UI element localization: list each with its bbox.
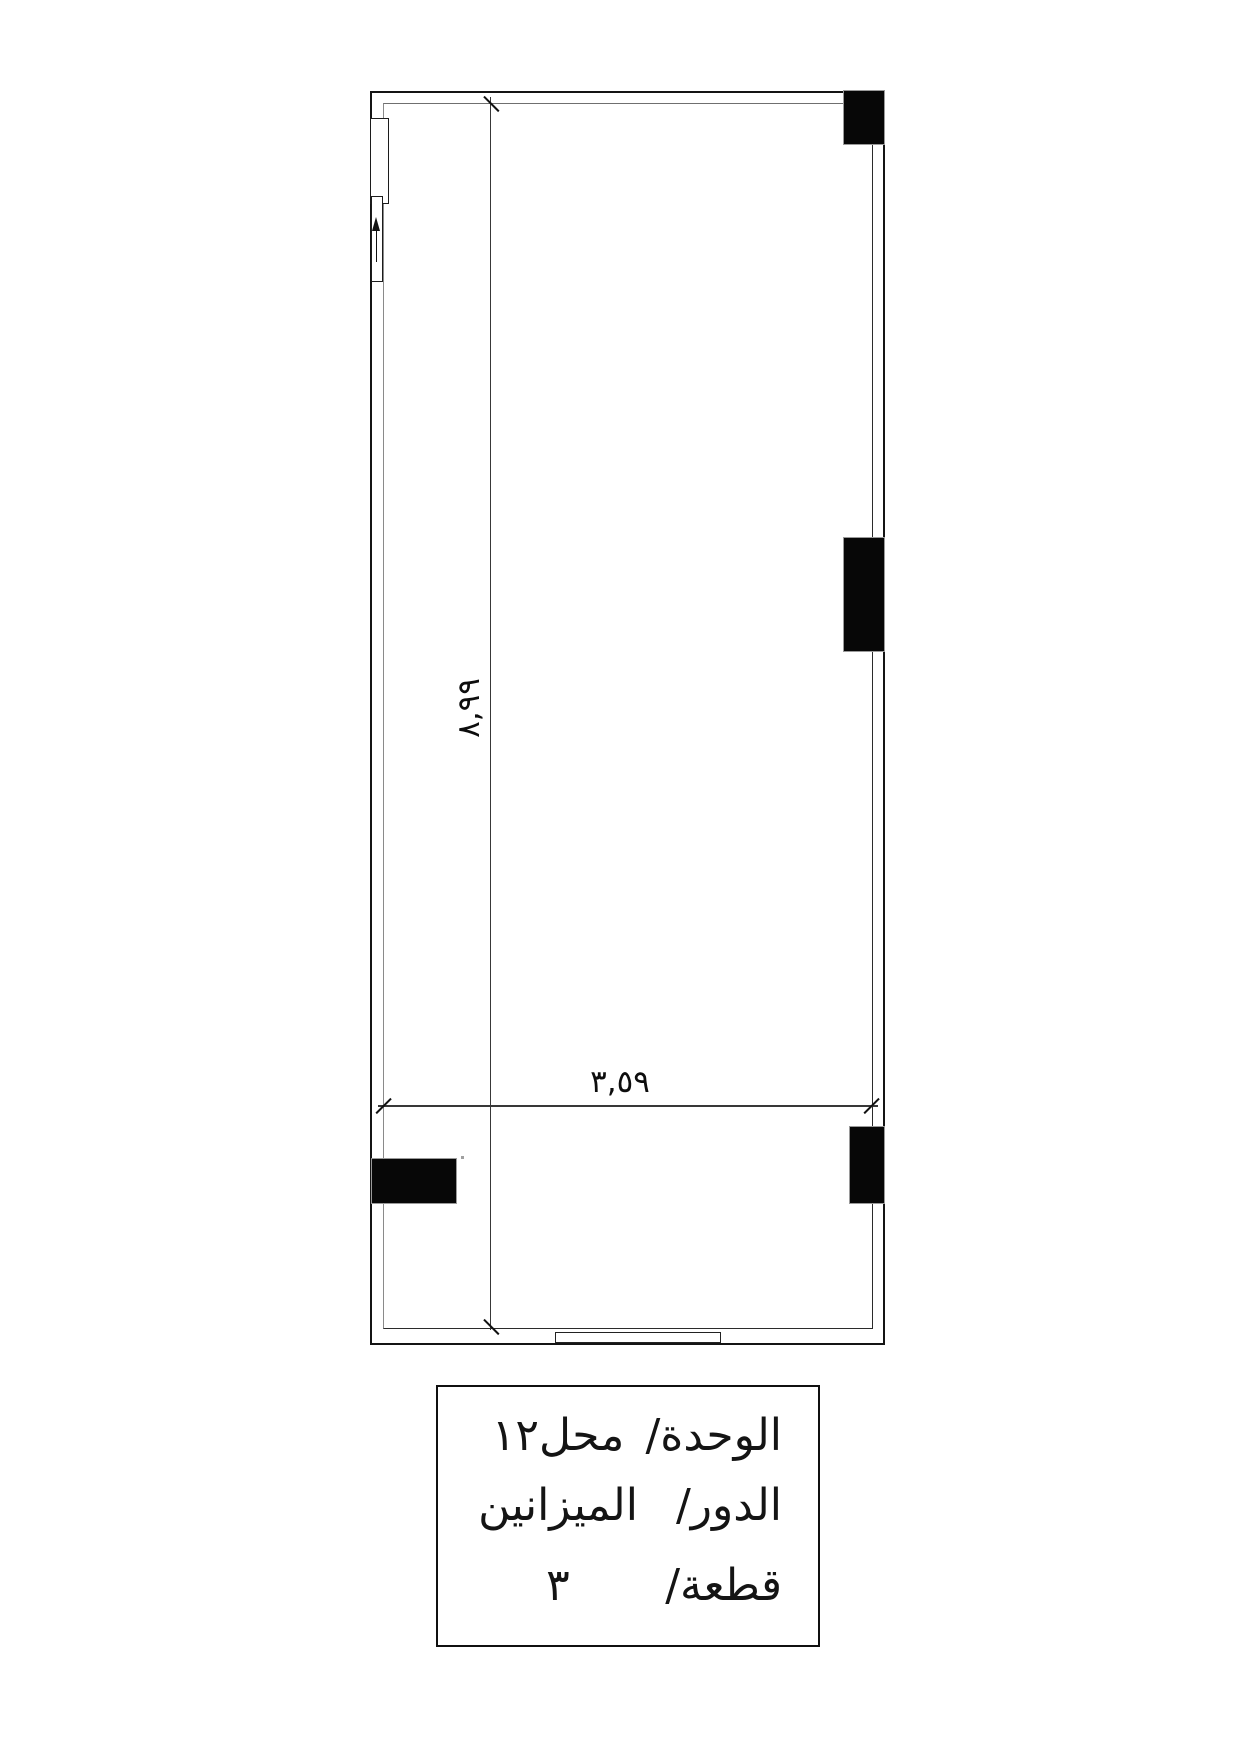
plot-value: ٣ xyxy=(463,1555,653,1617)
title-block: الوحدة/ محل١٢ الدور/ الميزانين قطعة/ ٣ xyxy=(436,1385,820,1647)
stray-mark xyxy=(461,1156,464,1159)
vertical-dimension-label: ٨,٩٩ xyxy=(452,646,486,770)
vertical-dimension-value: ٨,٩٩ xyxy=(451,678,487,738)
title-row-plot: قطعة/ ٣ xyxy=(438,1555,818,1617)
vertical-dimension-line xyxy=(490,97,491,1330)
door-swing-arrow-shaft xyxy=(376,229,378,262)
bottom-wall-opening xyxy=(555,1332,721,1343)
door-swing-arrow-icon xyxy=(372,217,380,231)
column-bottom-left xyxy=(371,1158,457,1204)
unit-label: الوحدة/ xyxy=(645,1405,782,1467)
title-row-unit: الوحدة/ محل١٢ xyxy=(438,1405,818,1467)
plot-label: قطعة/ xyxy=(665,1555,782,1617)
horizontal-dimension-value: ٣,٥٩ xyxy=(590,1064,650,1100)
floor-value: الميزانين xyxy=(463,1475,653,1537)
unit-value: محل١٢ xyxy=(463,1405,653,1467)
horizontal-dimension-label: ٣,٥٩ xyxy=(558,1064,682,1100)
column-bottom-right xyxy=(849,1126,885,1204)
column-middle-right xyxy=(843,537,885,652)
floor-plan-sheet: ٨,٩٩ ٣,٥٩ الوحدة/ محل١٢ الدور/ الميزانين… xyxy=(0,0,1241,1755)
horizontal-dimension-line xyxy=(378,1105,878,1106)
door-panel-upper xyxy=(370,118,389,204)
title-row-floor: الدور/ الميزانين xyxy=(438,1475,818,1537)
floor-label: الدور/ xyxy=(676,1475,782,1537)
column-top-right xyxy=(843,90,885,145)
